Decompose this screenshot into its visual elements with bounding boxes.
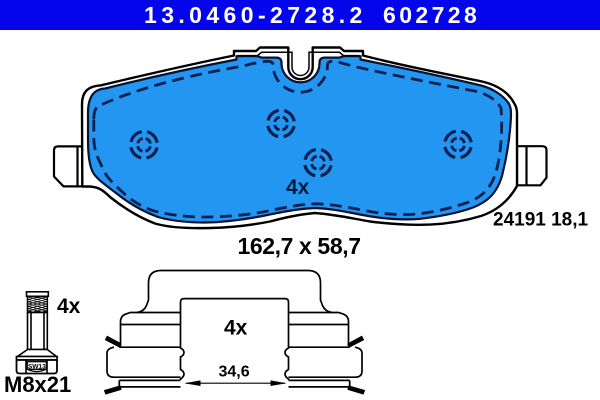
- svg-text:4x: 4x: [224, 317, 248, 340]
- svg-text:SW13: SW13: [28, 363, 46, 370]
- svg-text:4x: 4x: [286, 176, 310, 199]
- svg-text:162,7 x 58,7: 162,7 x 58,7: [238, 233, 361, 259]
- svg-text:24191 18,1: 24191 18,1: [493, 210, 589, 231]
- svg-text:4x: 4x: [57, 295, 81, 318]
- svg-text:M8x21: M8x21: [4, 372, 71, 397]
- svg-text:13.0460-2728.2: 13.0460-2728.2: [144, 2, 367, 28]
- svg-text:602728: 602728: [383, 2, 480, 28]
- svg-text:34,6: 34,6: [219, 364, 250, 381]
